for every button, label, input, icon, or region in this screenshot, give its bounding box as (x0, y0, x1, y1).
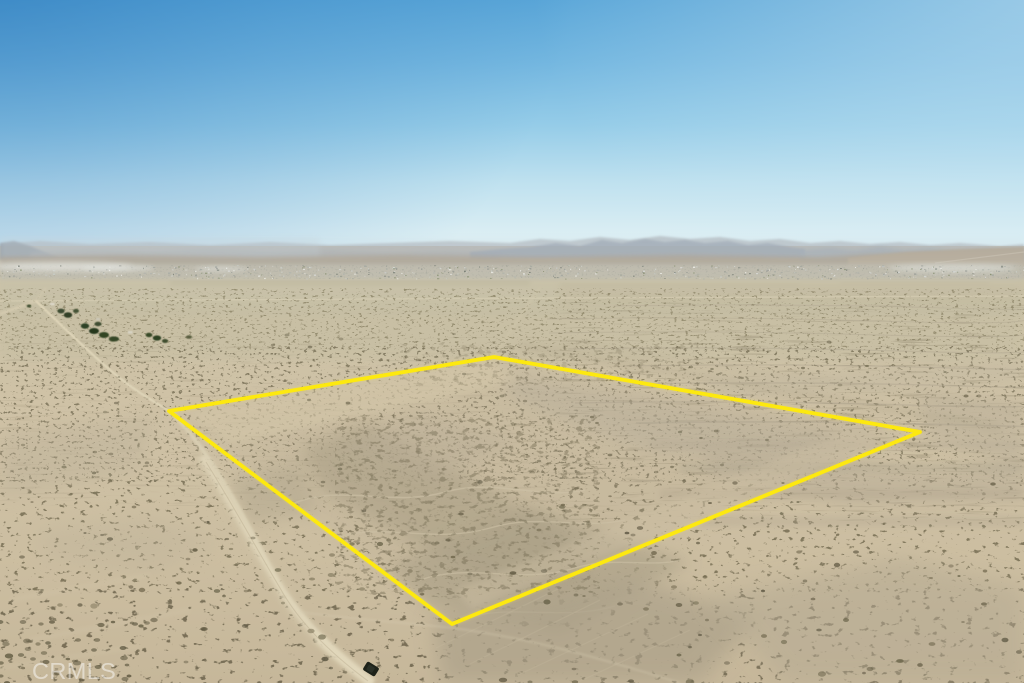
svg-text:CRMLS: CRMLS (32, 658, 116, 683)
